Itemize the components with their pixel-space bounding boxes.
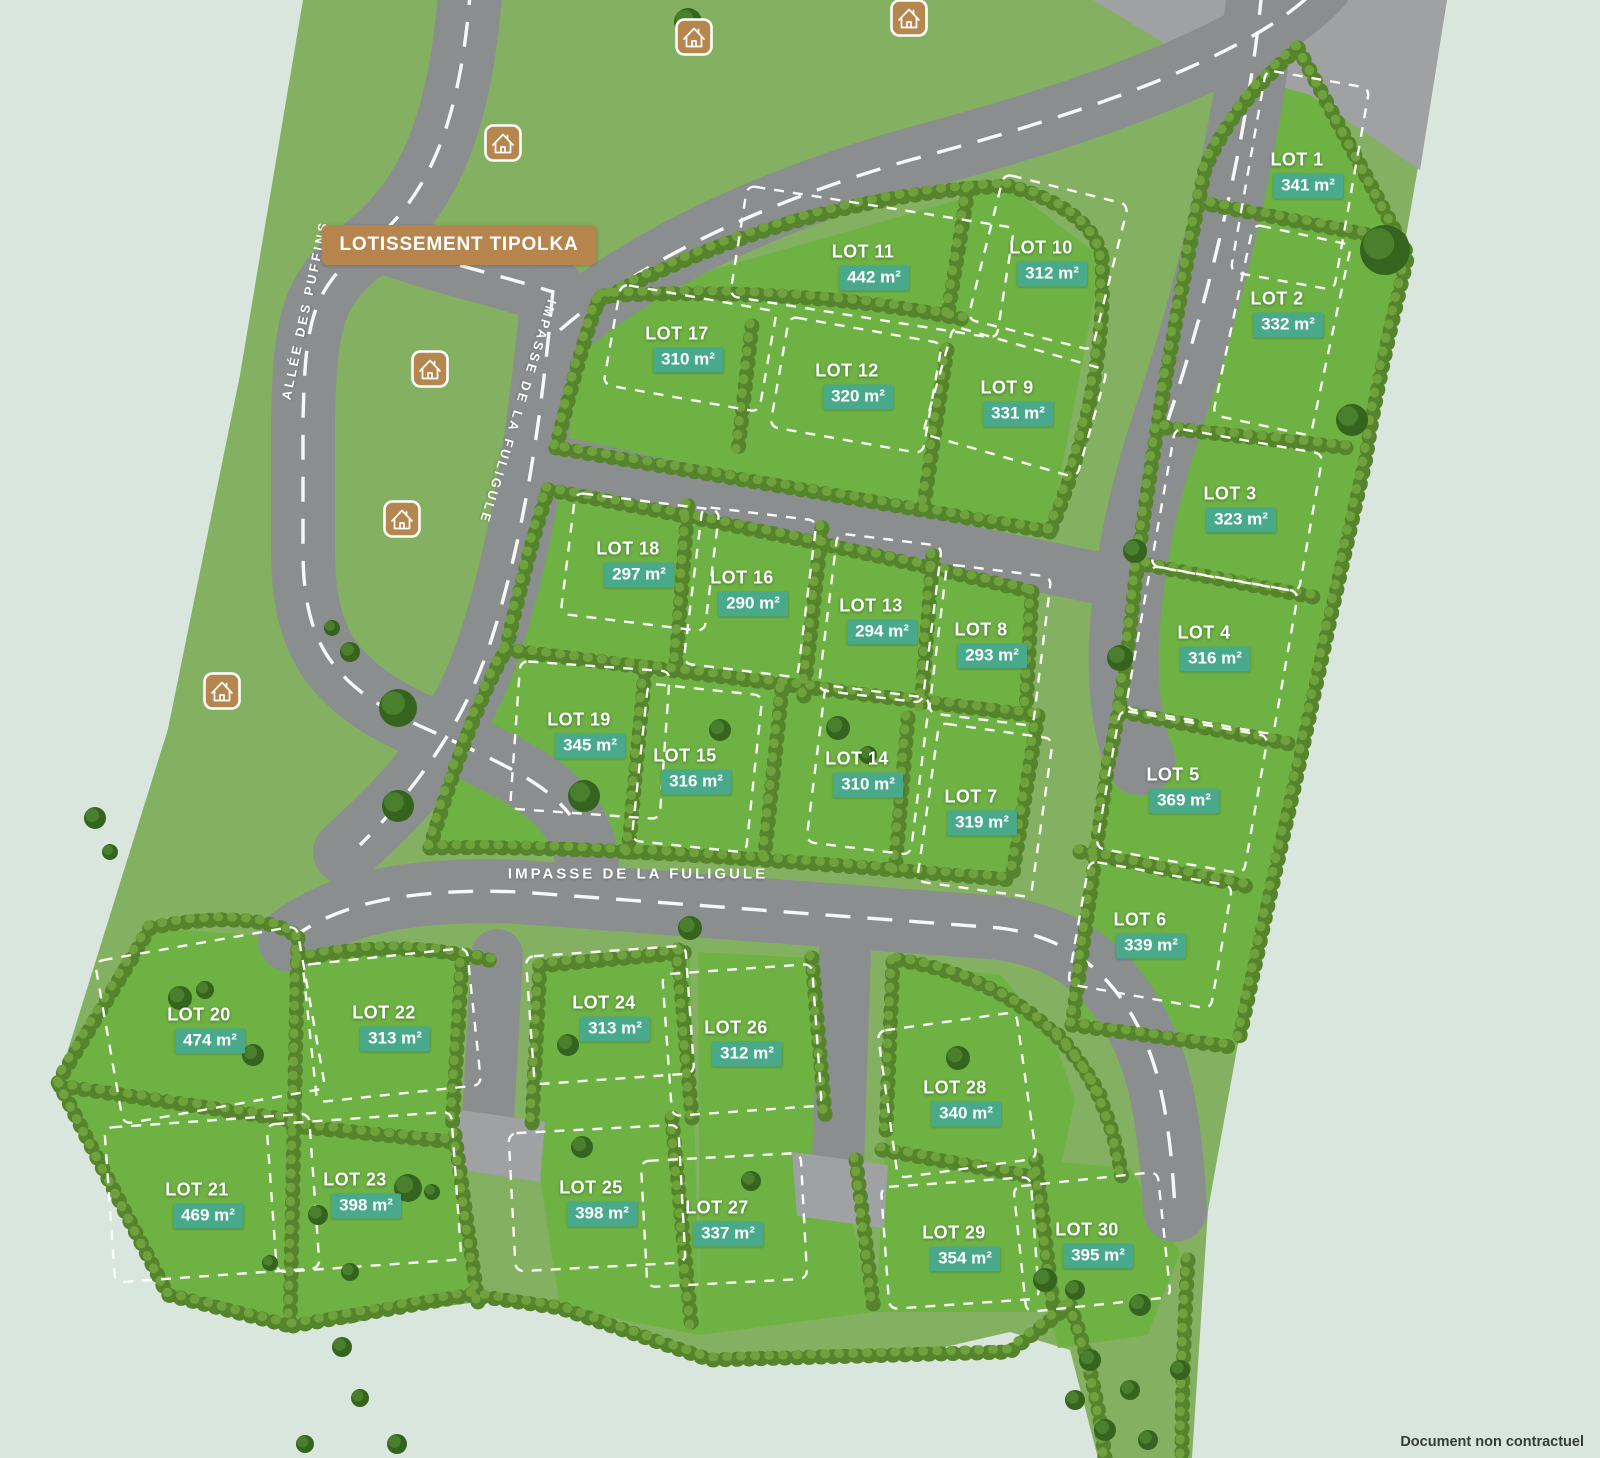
lot-area-badge: 312 m² <box>712 1042 782 1067</box>
lot-name: LOT 19 <box>547 710 610 731</box>
lot-area-badge: 369 m² <box>1149 789 1219 814</box>
lot-marker[interactable]: LOT 10312 m² <box>995 238 1087 287</box>
lot-marker[interactable]: LOT 5369 m² <box>1127 765 1219 814</box>
lot-area-badge: 294 m² <box>847 620 917 645</box>
lot-area-badge: 474 m² <box>175 1029 245 1054</box>
lot-area-badge: 320 m² <box>823 385 893 410</box>
lot-name: LOT 18 <box>596 539 659 560</box>
lot-name: LOT 10 <box>1009 238 1072 259</box>
lot-name: LOT 4 <box>1177 623 1230 644</box>
lot-marker[interactable]: LOT 30395 m² <box>1041 1220 1133 1269</box>
lot-area-badge: 469 m² <box>173 1204 243 1229</box>
lot-name: LOT 17 <box>645 324 708 345</box>
lot-marker[interactable]: LOT 25398 m² <box>545 1178 637 1227</box>
footer-note: Document non contractuel <box>1400 1434 1584 1450</box>
lot-area-badge: 323 m² <box>1206 508 1276 533</box>
lot-marker[interactable]: LOT 8293 m² <box>935 620 1027 669</box>
lot-area-badge: 331 m² <box>983 402 1053 427</box>
lot-area-badge: 293 m² <box>957 644 1027 669</box>
lot-area-badge: 398 m² <box>331 1194 401 1219</box>
lot-name: LOT 8 <box>954 620 1007 641</box>
lot-marker[interactable]: LOT 16290 m² <box>696 568 788 617</box>
lot-area-badge: 313 m² <box>580 1017 650 1042</box>
lot-marker[interactable]: LOT 2332 m² <box>1231 289 1323 338</box>
lot-marker[interactable]: LOT 19345 m² <box>533 710 625 759</box>
lot-area-badge: 313 m² <box>360 1027 430 1052</box>
lot-marker[interactable]: LOT 6339 m² <box>1094 910 1186 959</box>
lot-name: LOT 29 <box>922 1223 985 1244</box>
lot-area-badge: 310 m² <box>653 348 723 373</box>
lot-marker[interactable]: LOT 22313 m² <box>338 1003 430 1052</box>
lot-marker[interactable]: LOT 27337 m² <box>671 1198 763 1247</box>
lot-name: LOT 28 <box>923 1078 986 1099</box>
lot-marker[interactable]: LOT 23398 m² <box>309 1170 401 1219</box>
lot-marker[interactable]: LOT 21469 m² <box>151 1180 243 1229</box>
lot-area-badge: 341 m² <box>1273 174 1343 199</box>
lot-name: LOT 14 <box>825 749 888 770</box>
lot-area-badge: 354 m² <box>930 1247 1000 1272</box>
lot-area-badge: 337 m² <box>693 1222 763 1247</box>
lot-name: LOT 23 <box>323 1170 386 1191</box>
lot-area-badge: 319 m² <box>947 811 1017 836</box>
lot-area-badge: 310 m² <box>833 773 903 798</box>
street-label-impasse-fuligule-upper: IMPASSE DE LA FULIGULE <box>477 298 560 526</box>
lot-marker[interactable]: LOT 20474 m² <box>153 1005 245 1054</box>
lot-area-badge: 316 m² <box>1180 647 1250 672</box>
lot-name: LOT 5 <box>1146 765 1199 786</box>
lot-area-badge: 290 m² <box>718 592 788 617</box>
lot-marker[interactable]: LOT 12320 m² <box>801 361 893 410</box>
lot-marker[interactable]: LOT 13294 m² <box>825 596 917 645</box>
lot-name: LOT 1 <box>1270 150 1323 171</box>
lot-name: LOT 20 <box>167 1005 230 1026</box>
lot-name: LOT 24 <box>572 993 635 1014</box>
lot-marker[interactable]: LOT 1341 m² <box>1251 150 1343 199</box>
lot-name: LOT 25 <box>559 1178 622 1199</box>
lot-marker[interactable]: LOT 4316 m² <box>1158 623 1250 672</box>
lot-marker[interactable]: LOT 17310 m² <box>631 324 723 373</box>
label-overlay: LOTISSEMENT TIPOLKA ALLÉE DES PUFFINS IM… <box>0 0 1600 1458</box>
lot-name: LOT 3 <box>1203 484 1256 505</box>
lot-name: LOT 2 <box>1250 289 1303 310</box>
lot-name: LOT 11 <box>832 242 894 263</box>
lot-marker[interactable]: LOT 15316 m² <box>639 746 731 795</box>
lot-marker[interactable]: LOT 7319 m² <box>925 787 1017 836</box>
lot-area-badge: 345 m² <box>555 734 625 759</box>
street-label-impasse-fuligule-lower: IMPASSE DE LA FULIGULE <box>508 866 768 883</box>
lot-marker[interactable]: LOT 14310 m² <box>811 749 903 798</box>
title-banner: LOTISSEMENT TIPOLKA <box>322 225 597 265</box>
lot-area-badge: 316 m² <box>661 770 731 795</box>
lot-marker[interactable]: LOT 3323 m² <box>1184 484 1276 533</box>
lot-name: LOT 9 <box>980 378 1033 399</box>
lot-area-badge: 340 m² <box>931 1102 1001 1127</box>
lot-name: LOT 12 <box>815 361 878 382</box>
lot-name: LOT 26 <box>704 1018 767 1039</box>
lot-marker[interactable]: LOT 18297 m² <box>582 539 674 588</box>
lot-marker[interactable]: LOT 11442 m² <box>817 242 909 291</box>
lot-name: LOT 27 <box>685 1198 748 1219</box>
lot-area-badge: 297 m² <box>604 563 674 588</box>
lot-area-badge: 398 m² <box>567 1202 637 1227</box>
lot-name: LOT 22 <box>352 1003 415 1024</box>
lot-area-badge: 312 m² <box>1017 262 1087 287</box>
lot-marker[interactable]: LOT 24313 m² <box>558 993 650 1042</box>
subdivision-plan: LOTISSEMENT TIPOLKA ALLÉE DES PUFFINS IM… <box>0 0 1600 1458</box>
lot-marker[interactable]: LOT 28340 m² <box>909 1078 1001 1127</box>
lot-name: LOT 13 <box>839 596 902 617</box>
lot-area-badge: 339 m² <box>1116 934 1186 959</box>
lot-name: LOT 21 <box>165 1180 228 1201</box>
lot-area-badge: 395 m² <box>1063 1244 1133 1269</box>
lot-marker[interactable]: LOT 9331 m² <box>961 378 1053 427</box>
lot-marker[interactable]: LOT 26312 m² <box>690 1018 782 1067</box>
lot-area-badge: 442 m² <box>839 266 909 291</box>
lot-name: LOT 16 <box>710 568 773 589</box>
lot-marker[interactable]: LOT 29354 m² <box>908 1223 1000 1272</box>
lot-name: LOT 30 <box>1055 1220 1118 1241</box>
lot-name: LOT 7 <box>944 787 997 808</box>
lot-name: LOT 15 <box>653 746 716 767</box>
lot-name: LOT 6 <box>1113 910 1166 931</box>
lot-area-badge: 332 m² <box>1253 313 1323 338</box>
